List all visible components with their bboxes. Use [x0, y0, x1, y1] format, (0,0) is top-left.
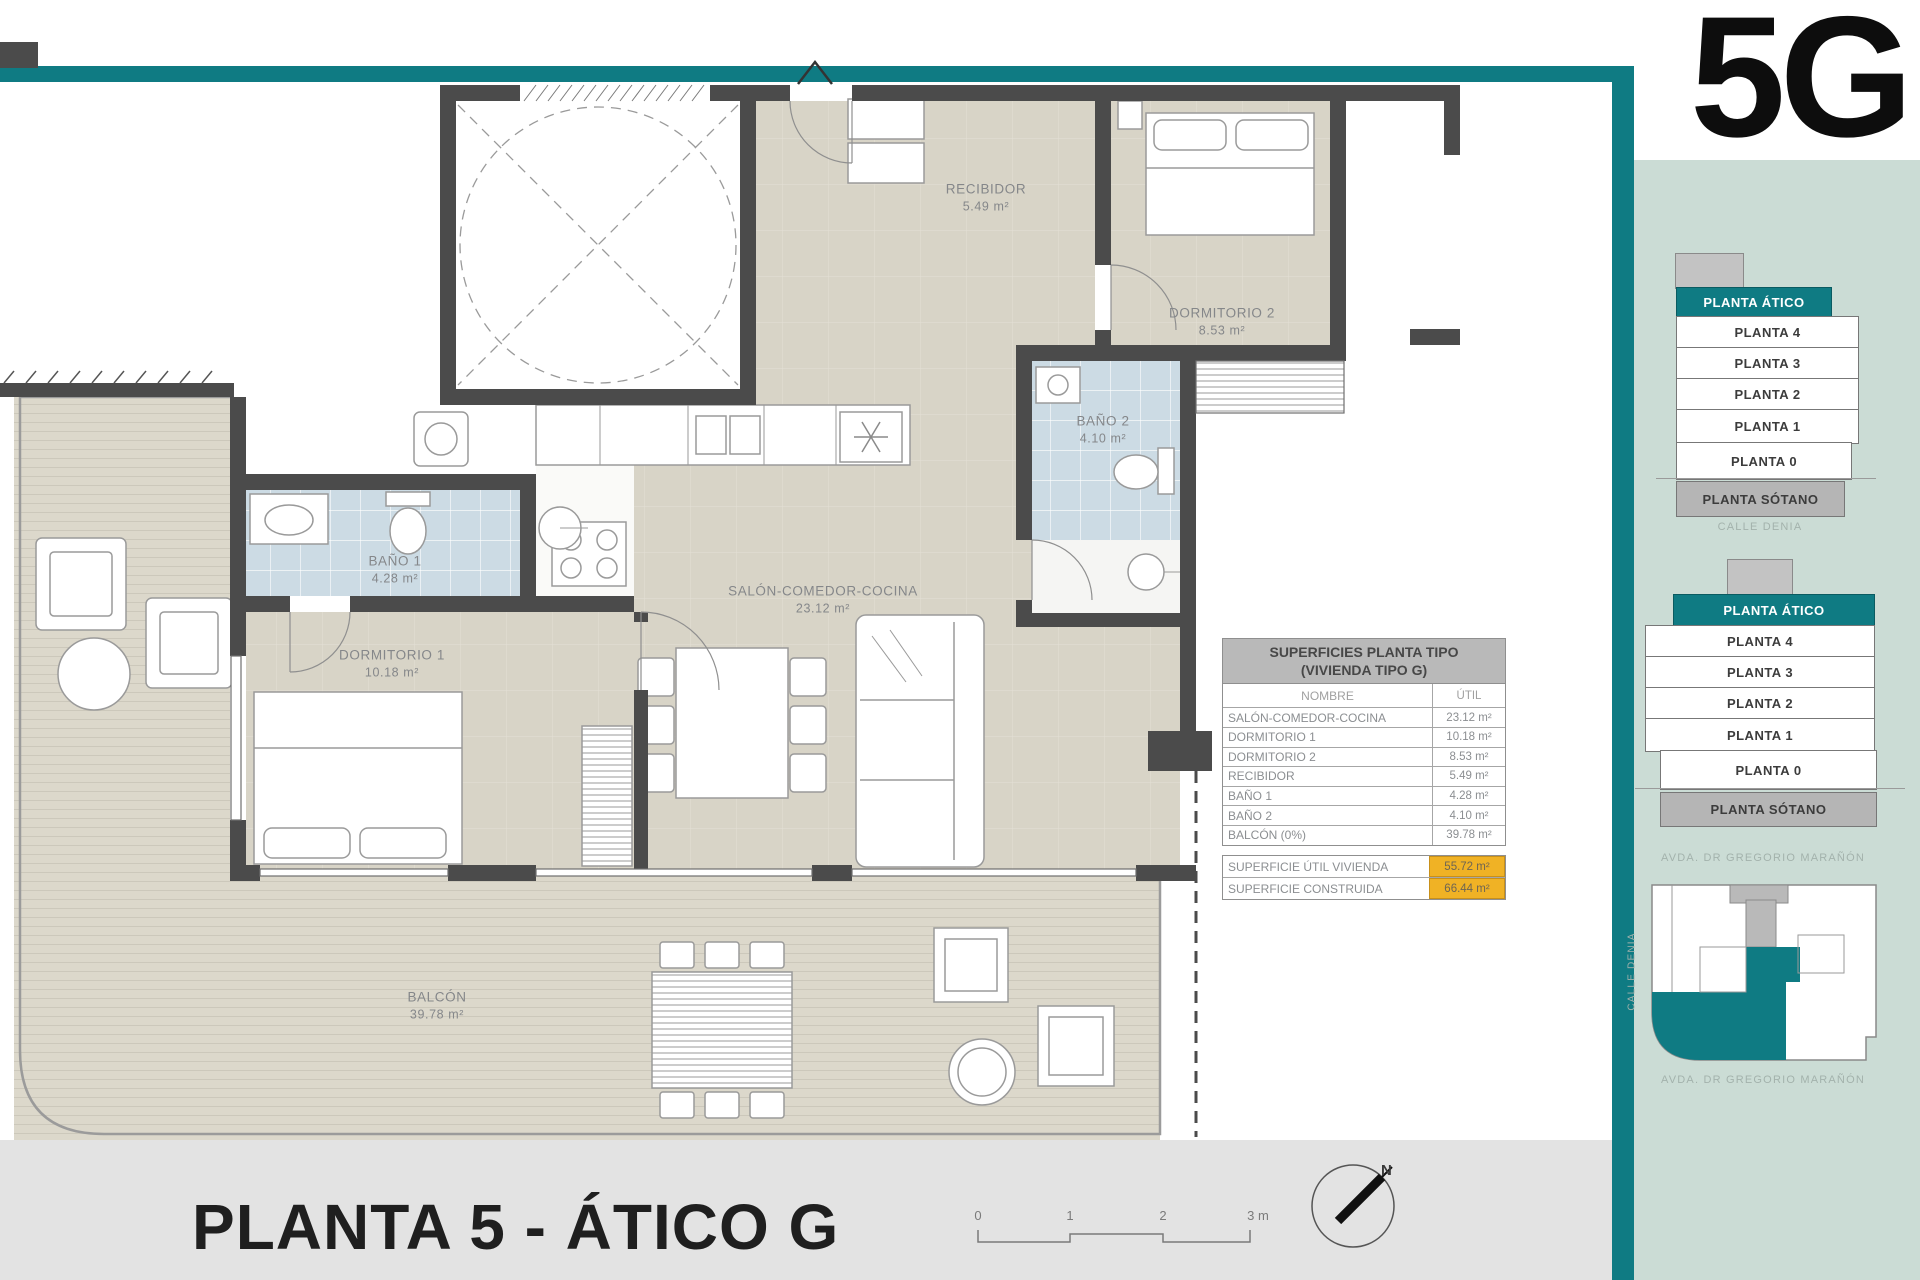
scale-tick-label: 0	[974, 1208, 981, 1223]
stack-floor: PLANTA 0	[1676, 442, 1852, 480]
surfaces-table: SUPERFICIES PLANTA TIPO (VIVIENDA TIPO G…	[1222, 638, 1506, 846]
stack-roof-box	[1727, 559, 1793, 596]
floor-plan-page: RECIBIDOR5.49 m² DORMITORIO 28.53 m² BAÑ…	[0, 0, 1920, 1280]
table-row: DORMITORIO 28.53 m²	[1223, 748, 1505, 768]
page-title: PLANTA 5 - ÁTICO G	[192, 1190, 839, 1264]
table-row: SUPERFICIE CONSTRUIDA66.44 m²	[1223, 878, 1505, 899]
table-row: BAÑO 14.28 m²	[1223, 787, 1505, 807]
table-row: BALCÓN (0%)39.78 m²	[1223, 826, 1505, 845]
stack-caption: AVDA. DR GREGORIO MARAÑÓN	[1633, 852, 1893, 864]
stack-floor: PLANTA 3	[1645, 656, 1875, 689]
table-row: DORMITORIO 110.18 m²	[1223, 728, 1505, 748]
stack-floor: PLANTA 3	[1676, 347, 1859, 380]
table-row: RECIBIDOR5.49 m²	[1223, 767, 1505, 787]
scale-tick-label: 3 m	[1247, 1208, 1269, 1223]
floor-plan-drawing	[0, 0, 1920, 1280]
stack-floor: PLANTA 2	[1676, 378, 1859, 411]
site-plan-street-label: CALLE DENIA	[1627, 912, 1638, 1032]
highlighted-value: 66.44 m²	[1429, 878, 1505, 899]
table-row: SALÓN-COMEDOR-COCINA23.12 m²	[1223, 708, 1505, 728]
surfaces-table-header: NOMBRE ÚTIL	[1223, 684, 1505, 708]
stack-floor: PLANTA 1	[1645, 718, 1875, 752]
stack-floor: PLANTA 1	[1676, 409, 1859, 444]
unit-code: 5G	[1690, 0, 1907, 176]
stack-roof-box	[1675, 253, 1744, 289]
north-label: N	[1381, 1162, 1392, 1179]
scale-tick-label: 2	[1159, 1208, 1166, 1223]
stack-floor: PLANTA 2	[1645, 687, 1875, 720]
site-plan	[1652, 885, 1876, 1060]
ground-line	[1635, 788, 1905, 789]
table-row: SUPERFICIE ÚTIL VIVIENDA55.72 m²	[1223, 856, 1505, 878]
stack-floor-atico: PLANTA ÁTICO	[1676, 287, 1832, 318]
surfaces-totals: SUPERFICIE ÚTIL VIVIENDA55.72 m² SUPERFI…	[1222, 855, 1506, 900]
scale-tick-label: 1	[1066, 1208, 1073, 1223]
stack-floor: PLANTA 0	[1660, 750, 1877, 790]
table-row: BAÑO 24.10 m²	[1223, 806, 1505, 826]
stack-floor-atico: PLANTA ÁTICO	[1673, 594, 1875, 627]
highlighted-value: 55.72 m²	[1429, 856, 1505, 877]
stack-floor-sotano: PLANTA SÓTANO	[1676, 481, 1845, 517]
stack-floor-sotano: PLANTA SÓTANO	[1660, 792, 1877, 827]
ground-line	[1656, 478, 1876, 479]
stack-caption: CALLE DENIA	[1660, 521, 1860, 533]
site-plan-caption: AVDA. DR GREGORIO MARAÑÓN	[1633, 1074, 1893, 1086]
stack-floor: PLANTA 4	[1645, 625, 1875, 658]
stack-floor: PLANTA 4	[1676, 316, 1859, 349]
surfaces-table-title: SUPERFICIES PLANTA TIPO (VIVIENDA TIPO G…	[1223, 639, 1505, 684]
